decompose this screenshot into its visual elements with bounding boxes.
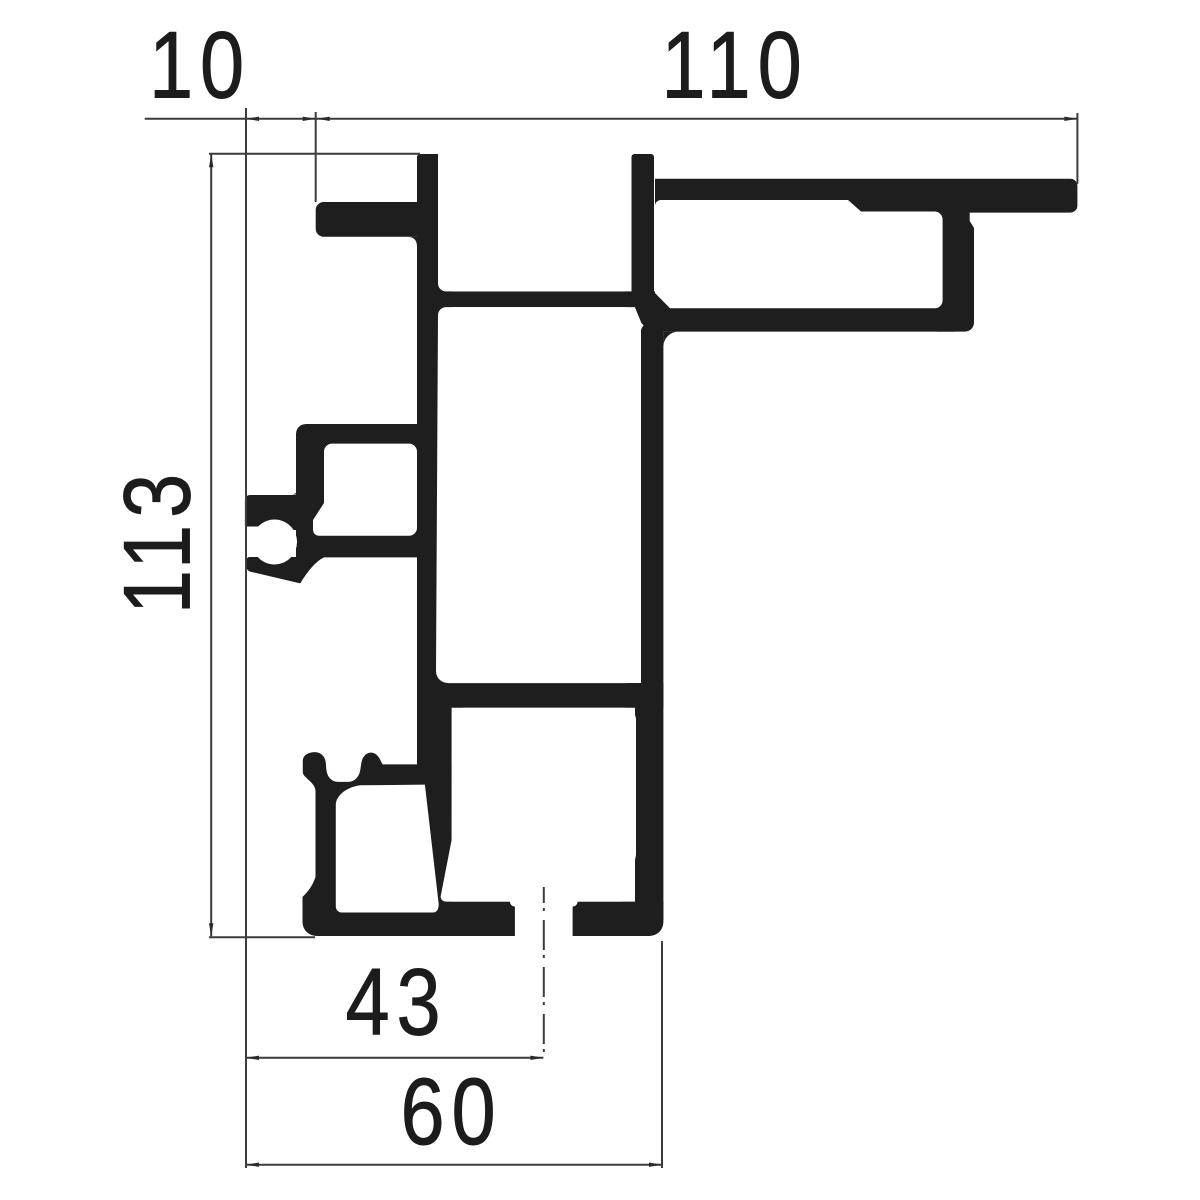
svg-text:110: 110 [661, 13, 808, 118]
svg-text:113: 113 [105, 467, 210, 614]
svg-text:60: 60 [400, 1060, 502, 1165]
svg-text:10: 10 [149, 13, 251, 118]
svg-text:43: 43 [345, 950, 447, 1055]
